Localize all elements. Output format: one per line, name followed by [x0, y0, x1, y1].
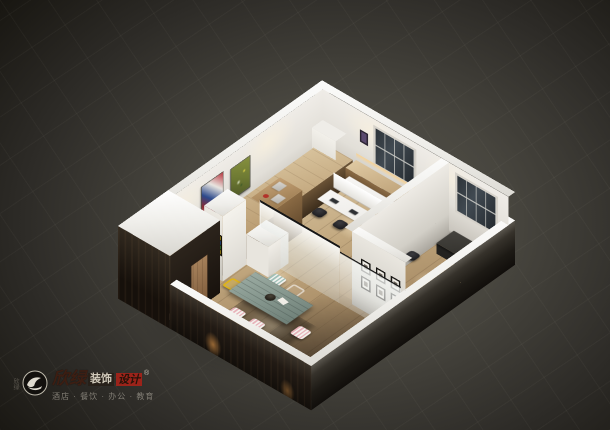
- logo-tagline: 酒店 · 餐饮 · 办公 · 教育: [52, 391, 154, 402]
- design-badge: 设计: [116, 373, 142, 386]
- small-purple-frame: [360, 129, 368, 146]
- storage-box: [272, 181, 287, 191]
- emblem-side-text: 欣绿: [12, 378, 18, 390]
- registered-mark: ®: [144, 370, 149, 377]
- logo-text-block: 欣绿 装饰 设计 ® 酒店 · 餐饮 · 办公 · 教育: [52, 370, 154, 402]
- table-tray: [262, 292, 278, 302]
- watermark-logo: 欣绿 欣绿 装饰 设计 ® 酒店 · 餐饮 · 办公 · 教育: [12, 370, 154, 402]
- decor-badge: 装饰: [88, 373, 114, 386]
- table-napkin: [277, 297, 289, 305]
- monitor: [349, 209, 359, 215]
- red-bowl: [262, 193, 270, 198]
- monitor: [329, 198, 339, 204]
- render-stage: 欣绿 欣绿 装饰 设计 ® 酒店 · 餐饮 · 办公 · 教育: [0, 0, 610, 430]
- brand-script-text: 欣绿: [52, 370, 86, 388]
- swan-emblem-icon: [22, 370, 48, 396]
